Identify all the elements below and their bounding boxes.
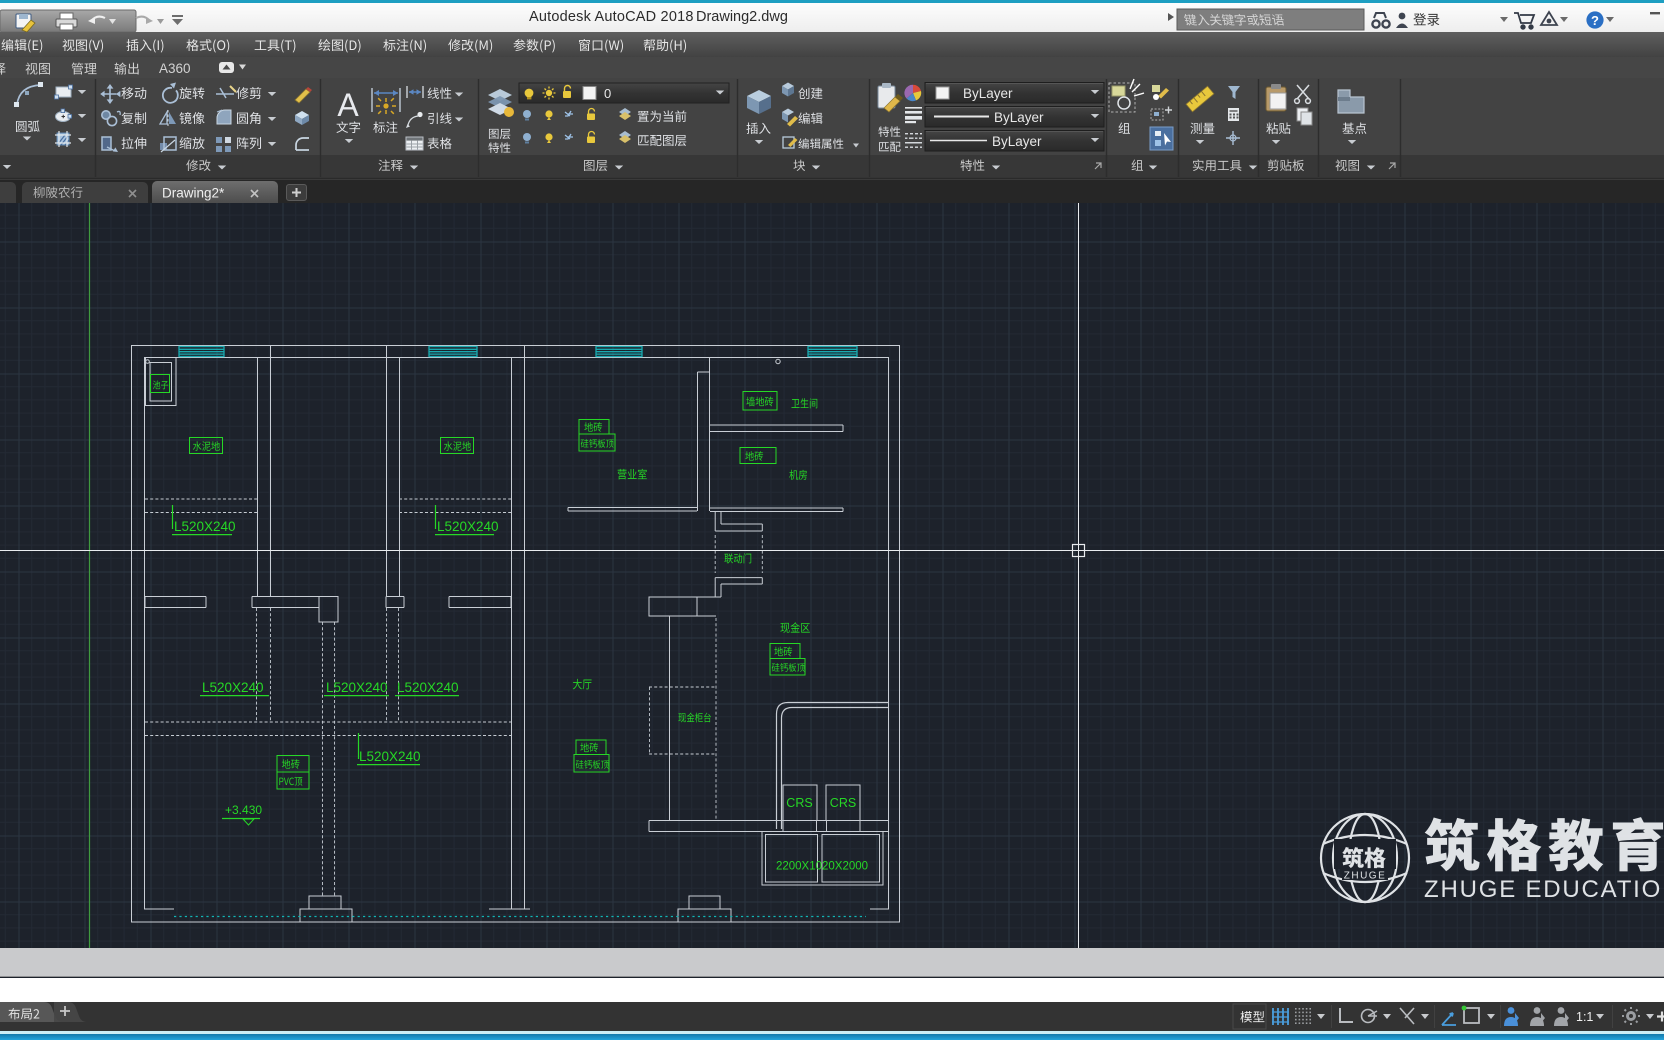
svg-text:L520X240: L520X240	[326, 680, 388, 695]
svg-text:CRS: CRS	[786, 796, 812, 810]
svg-text:ByLayer: ByLayer	[963, 86, 1013, 101]
svg-text:L520X240: L520X240	[174, 519, 236, 534]
svg-text:L520X240: L520X240	[359, 749, 421, 764]
svg-text:ZHUGE: ZHUGE	[1344, 871, 1387, 882]
svg-text:1:1: 1:1	[1576, 1010, 1593, 1024]
svg-text:L520X240: L520X240	[202, 680, 264, 695]
svg-text:L520X240: L520X240	[397, 680, 459, 695]
svg-text:Drawing2*: Drawing2*	[162, 186, 225, 201]
svg-text:0: 0	[604, 86, 611, 101]
svg-text:ZHUGE EDUCATION: ZHUGE EDUCATION	[1424, 876, 1664, 903]
svg-text:ByLayer: ByLayer	[994, 110, 1044, 125]
svg-text:CRS: CRS	[830, 796, 856, 810]
svg-text:+3.430: +3.430	[225, 803, 262, 817]
svg-text:2200X1020X2000: 2200X1020X2000	[776, 861, 868, 873]
svg-text:L520X240: L520X240	[437, 519, 499, 534]
svg-text:ByLayer: ByLayer	[992, 134, 1042, 149]
svg-text:A: A	[337, 87, 359, 123]
svg-text:A360: A360	[159, 61, 191, 76]
svg-text:?: ?	[1591, 13, 1599, 28]
